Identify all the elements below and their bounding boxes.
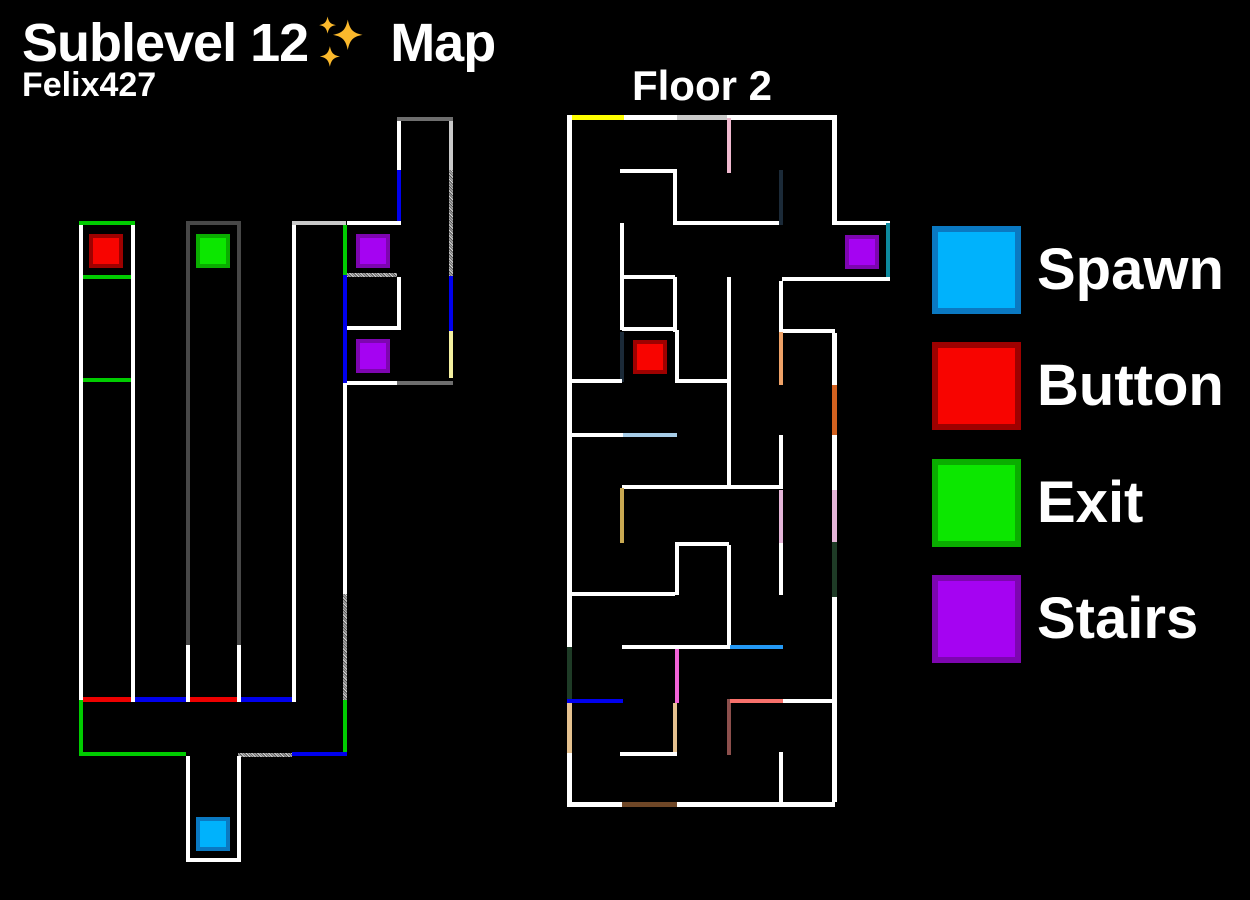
legend-label: Spawn (1037, 226, 1224, 314)
legend-label: Exit (1037, 459, 1143, 547)
legend-swatch-stairs (932, 575, 1021, 663)
legend-label: Button (1037, 342, 1224, 430)
legend-swatch-spawn (932, 226, 1021, 314)
legend-swatch-button (932, 342, 1021, 430)
legend-label: Stairs (1037, 575, 1198, 663)
legend-item-spawn: Spawn (932, 226, 1224, 314)
legend: SpawnButtonExitStairs (0, 0, 1250, 900)
legend-swatch-exit (932, 459, 1021, 547)
legend-item-button: Button (932, 342, 1224, 430)
legend-item-stairs: Stairs (932, 575, 1198, 663)
legend-item-exit: Exit (932, 459, 1143, 547)
